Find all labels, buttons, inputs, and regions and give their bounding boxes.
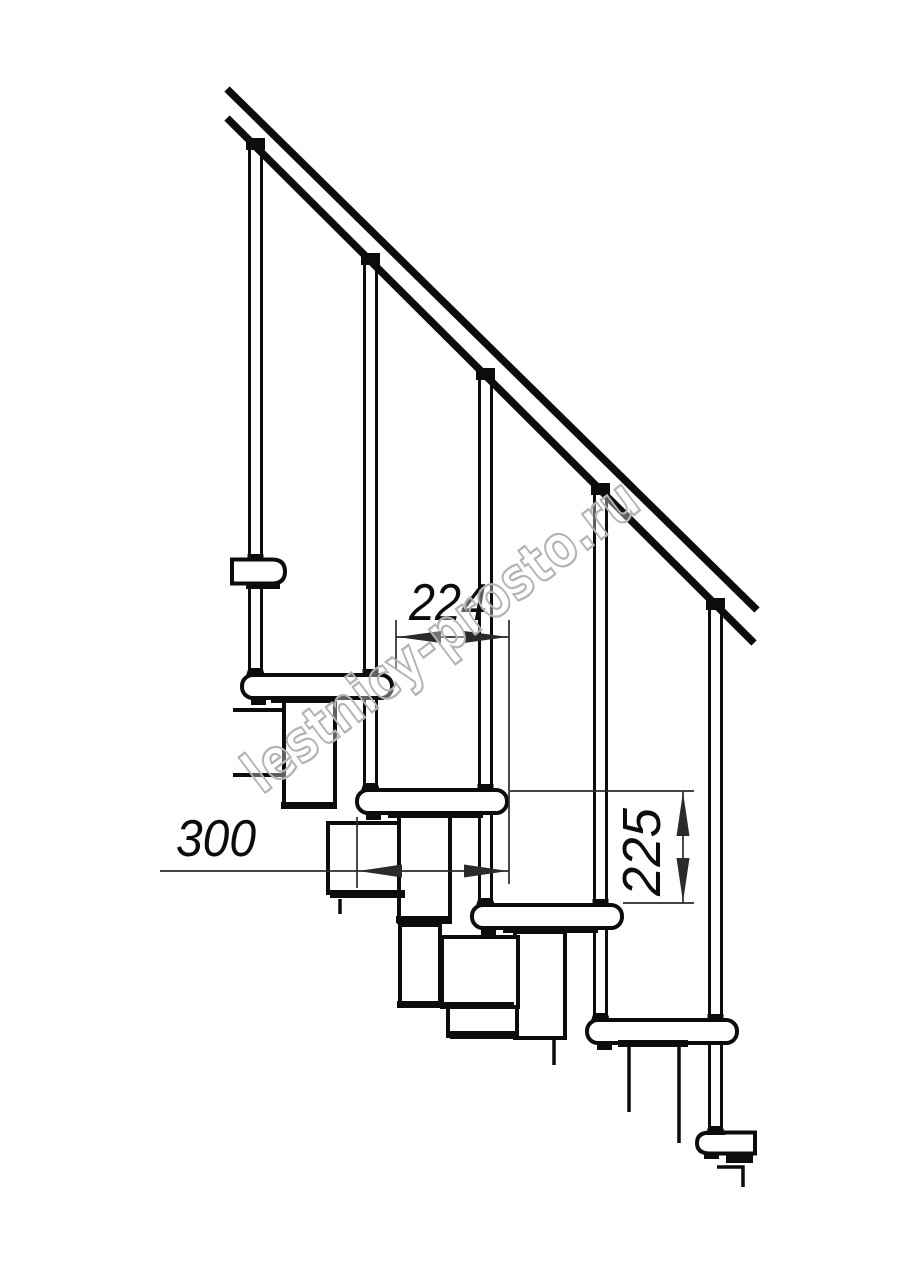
baluster-3-cap [476,368,495,380]
module-3-box-flange [444,1002,514,1009]
baluster-5-cap [706,598,725,610]
module-3-sub-flange [450,1031,517,1039]
baluster-4-collar [593,899,609,906]
tread-4-tab [481,926,496,935]
baluster-5-foot [706,1126,726,1135]
tread-4 [472,905,622,928]
tread-6-plate [726,1155,753,1163]
module-3-side-flange [397,1001,442,1008]
tread-3-plate [388,811,483,818]
baluster-1-foot [246,668,266,677]
baluster-3-foot [476,898,496,907]
module-3-side-box [400,925,440,1005]
tread-6-tab [704,1152,719,1159]
module-3-tube [399,815,450,922]
module-2-box [328,823,405,893]
baluster-3-collar [478,784,494,791]
tread-2-tab [251,696,266,705]
staircase-technical-drawing: 224 300 225 lestnicy-prosto.ru [0,0,914,1280]
baluster-1-collar [248,554,264,561]
module-4-tube [515,932,565,1038]
baluster-4-foot [591,1013,611,1022]
baluster-2-cap [361,253,380,265]
module-2-box-flange [330,890,405,898]
tread-6-cut [697,1133,755,1154]
baluster-1 [250,146,262,676]
lower-step-break-line [717,1167,743,1187]
arrowhead-down [677,858,690,902]
tread-1-cut [232,560,285,584]
tread-5-tab [597,1041,612,1050]
staircase-drawing-canvas: 224 300 225 lestnicy-prosto.ru [0,0,914,1280]
baluster-5 [710,606,722,1134]
watermark-text: lestnicy-prosto.ru [230,464,653,806]
tread-4-plate [503,926,598,933]
baluster-4 [595,491,607,1021]
baluster-5-collar [708,1014,724,1021]
tread-5 [587,1020,737,1043]
module-2-tube-flange [281,802,337,809]
tread-3 [357,790,507,813]
arrowhead-up [677,792,690,836]
module-3-box [442,937,518,1007]
arrowhead-right [464,865,508,878]
tread-5-plate [618,1040,688,1047]
module-3-tube-flange [396,916,452,923]
baluster-1-cap [246,138,265,150]
treads [232,560,755,1154]
dimension-label-tread-depth: 300 [176,810,256,868]
tread-3-tab [366,811,381,820]
dimension-label-riser-height: 225 [612,807,672,897]
baluster-2-foot [361,783,381,792]
tread-1-plate [246,582,280,589]
